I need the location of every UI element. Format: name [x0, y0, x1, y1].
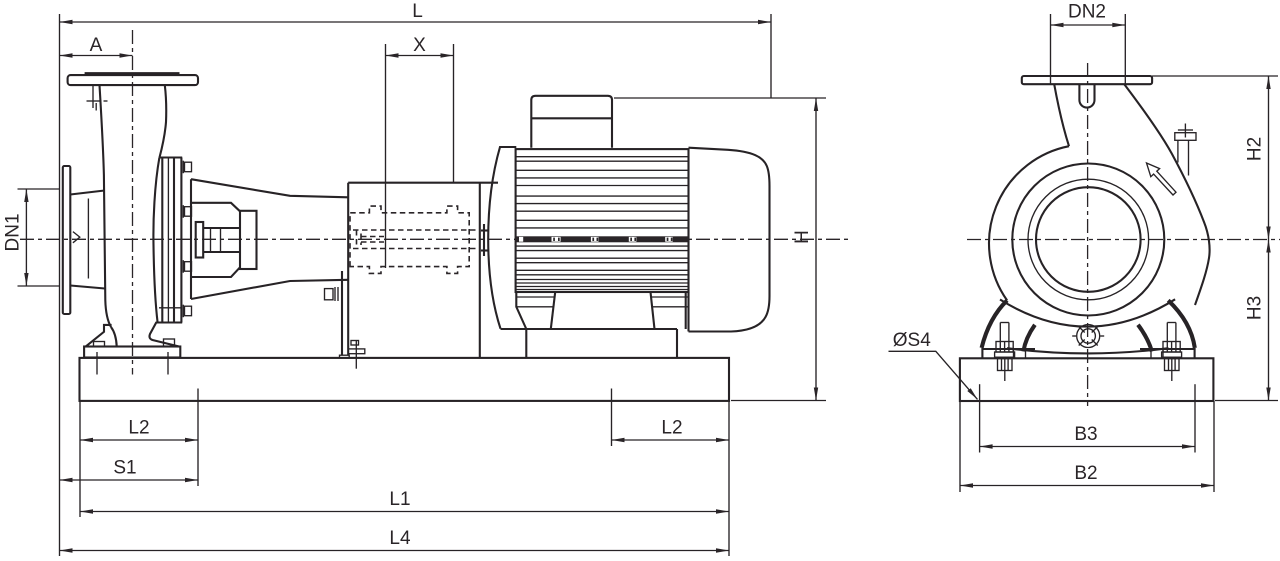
- svg-text:H: H: [792, 230, 813, 244]
- svg-text:DN1: DN1: [3, 213, 24, 251]
- svg-text:H3: H3: [1245, 296, 1266, 320]
- svg-text:DN2: DN2: [1068, 2, 1106, 23]
- svg-text:B3: B3: [1074, 424, 1097, 445]
- svg-text:L2: L2: [661, 418, 682, 439]
- svg-text:S1: S1: [113, 458, 136, 479]
- svg-text:L2: L2: [128, 418, 149, 439]
- svg-text:B2: B2: [1074, 463, 1097, 484]
- svg-text:L: L: [412, 1, 423, 22]
- svg-text:L4: L4: [389, 528, 411, 549]
- svg-text:X: X: [413, 35, 426, 56]
- svg-text:H2: H2: [1245, 137, 1266, 161]
- svg-text:A: A: [90, 35, 103, 56]
- svg-text:ØS4: ØS4: [893, 330, 931, 351]
- svg-text:L1: L1: [389, 489, 410, 510]
